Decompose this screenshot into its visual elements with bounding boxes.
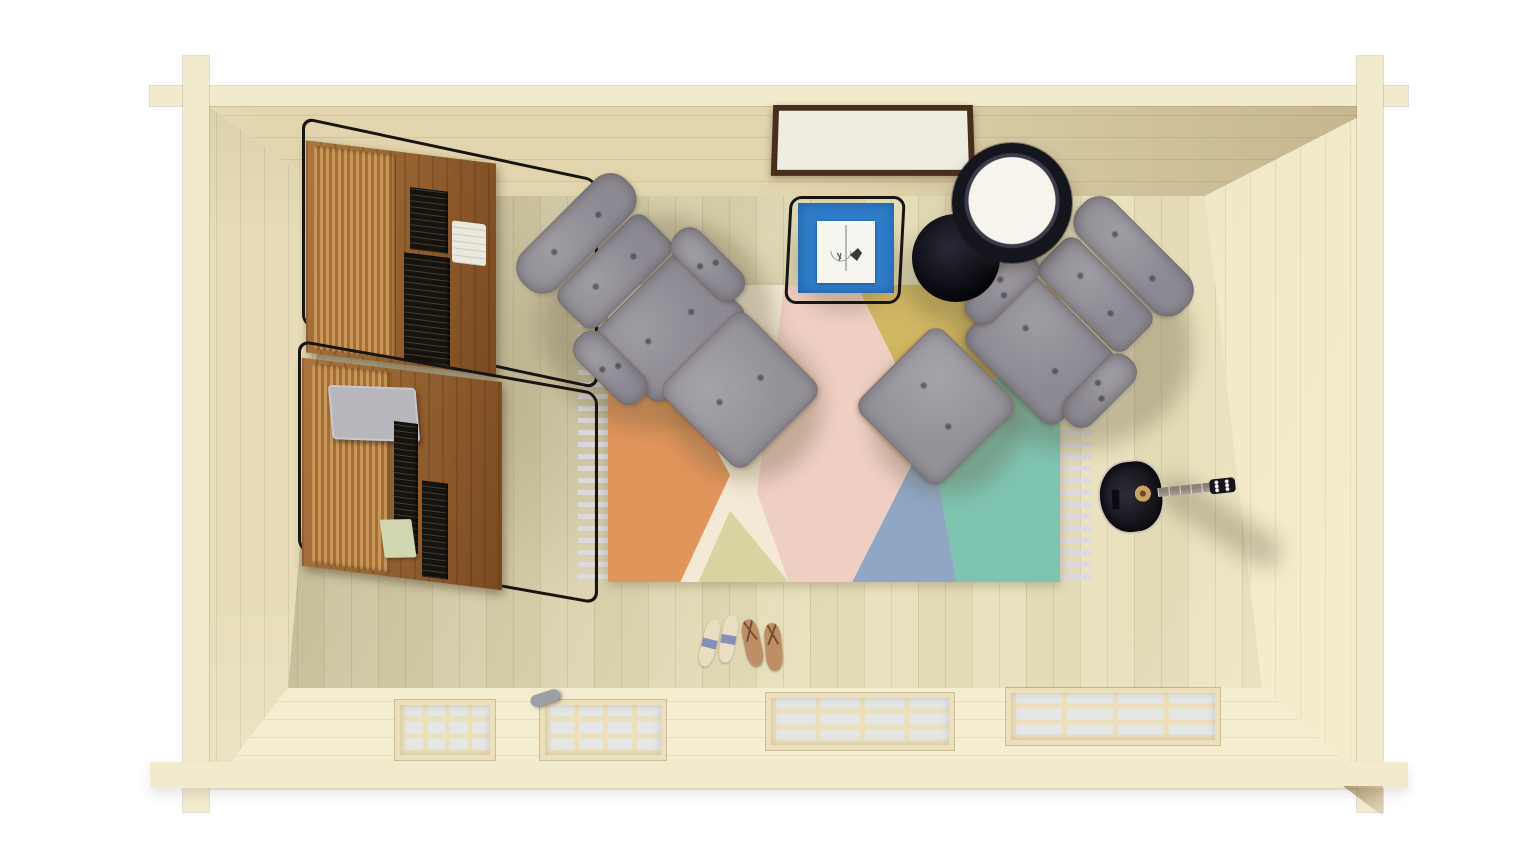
guitar-body — [1094, 457, 1167, 537]
guitar-bridge — [1112, 489, 1120, 509]
guitar-neck — [1157, 482, 1212, 497]
bookshelf-top — [306, 140, 496, 375]
double-door-right-panel — [540, 700, 666, 760]
cabin-room-render — [0, 0, 1536, 864]
window-right — [1006, 688, 1220, 745]
left-wall-plate — [183, 56, 209, 812]
side-table — [798, 203, 894, 293]
acoustic-guitar — [1094, 441, 1243, 547]
shelf-bottom-black-books-right — [422, 480, 448, 579]
right-wall-plate — [1357, 56, 1383, 812]
bottom-wall-plate — [150, 762, 1408, 788]
shelf-bottom-green-book — [380, 519, 417, 558]
top-wall-plate — [150, 86, 1408, 106]
double-door-left-panel — [395, 700, 495, 760]
footwear-group — [698, 613, 788, 673]
bookshelf-bottom — [302, 358, 502, 591]
shelf-top-door-panel — [314, 145, 396, 359]
sandal-right — [717, 614, 740, 664]
shelf-top-white-cloth — [452, 220, 486, 266]
sketch-paper — [817, 221, 875, 283]
shelf-top-black-books-large — [404, 252, 450, 366]
shelf-bottom-color-books — [422, 390, 448, 393]
sandal-left — [696, 618, 722, 668]
window-left — [766, 693, 954, 750]
guitar-headstock — [1209, 477, 1236, 495]
shelf-top-black-books-small — [410, 187, 448, 254]
flip-flop-right — [763, 622, 784, 671]
flip-flop-left — [739, 618, 766, 668]
framed-poster — [771, 105, 975, 176]
sketch-drawing — [817, 221, 875, 283]
shelf-top-color-books — [458, 277, 482, 280]
floor-lamp-shade — [952, 143, 1072, 263]
